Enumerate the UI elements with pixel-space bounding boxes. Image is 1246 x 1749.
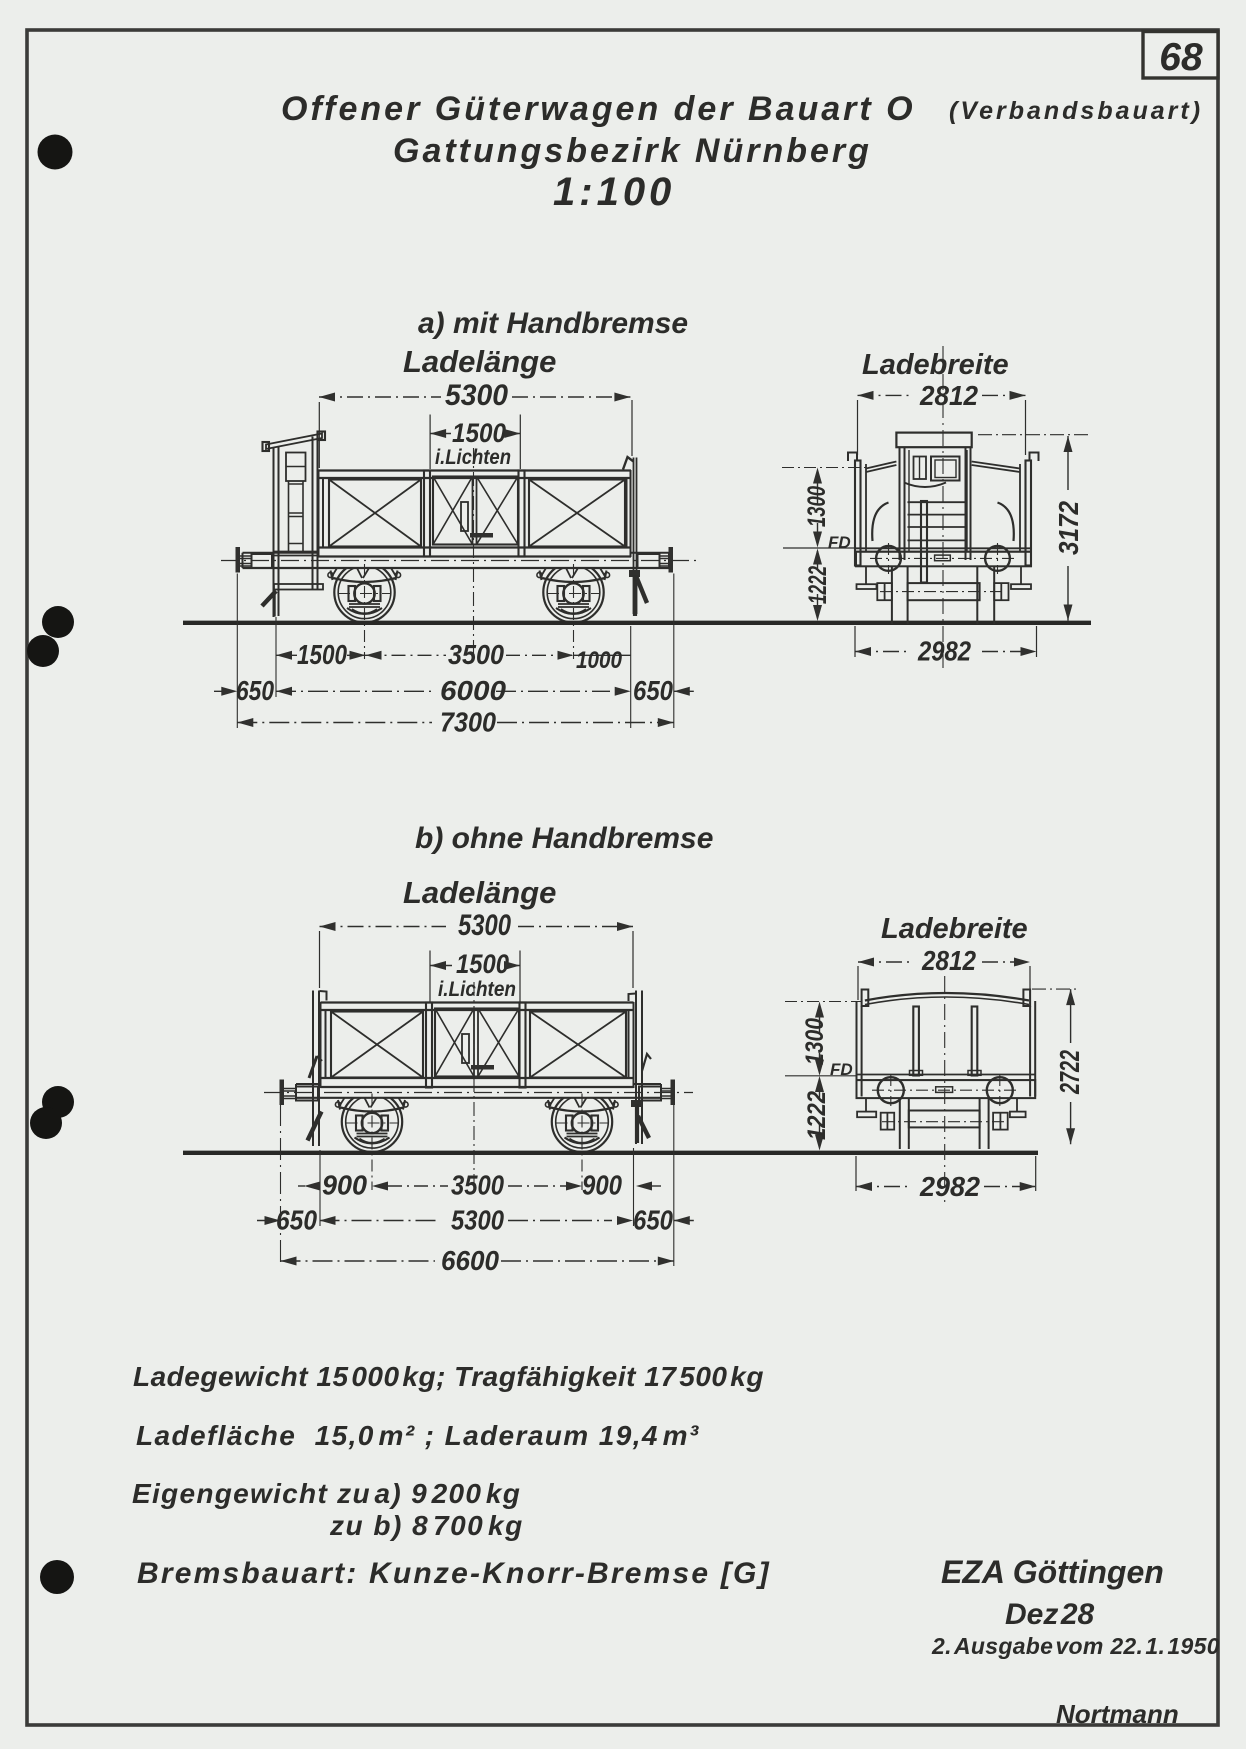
svg-text:1222: 1222 xyxy=(803,1091,831,1140)
svg-text:FD: FD xyxy=(830,1060,853,1079)
svg-text:2722: 2722 xyxy=(1054,1050,1085,1095)
svg-text:5300: 5300 xyxy=(458,909,511,942)
svg-text:1000: 1000 xyxy=(576,647,623,674)
svg-text:Eigengewicht zu a) 9 200 kg: Eigengewicht zu a) 9 200 kg xyxy=(132,1478,521,1509)
svg-text:2982: 2982 xyxy=(917,636,971,667)
svg-text:Ladelänge: Ladelänge xyxy=(403,344,556,379)
svg-text:i.Lichten: i.Lichten xyxy=(438,978,516,1001)
svg-text:EZA Göttingen: EZA Göttingen xyxy=(941,1554,1164,1590)
svg-text:Ladelänge: Ladelänge xyxy=(403,875,556,910)
svg-text:650: 650 xyxy=(633,675,673,706)
svg-text:2812: 2812 xyxy=(919,380,978,411)
svg-text:3500: 3500 xyxy=(451,1170,504,1201)
svg-text:68: 68 xyxy=(1159,36,1203,79)
svg-text:650: 650 xyxy=(236,675,274,706)
svg-text:Ladebreite: Ladebreite xyxy=(881,913,1028,945)
svg-text:5300: 5300 xyxy=(451,1205,504,1236)
svg-text:(Verbandsbauart): (Verbandsbauart) xyxy=(949,97,1203,125)
svg-text:2982: 2982 xyxy=(919,1171,980,1202)
svg-text:2812: 2812 xyxy=(921,945,976,976)
svg-text:Offener Güterwagen der Bauart: Offener Güterwagen der Bauart O xyxy=(281,90,916,128)
svg-text:1500: 1500 xyxy=(297,639,347,670)
svg-text:900: 900 xyxy=(582,1170,622,1201)
svg-text:FD: FD xyxy=(828,533,851,552)
svg-text:650: 650 xyxy=(633,1205,673,1236)
svg-text:1300: 1300 xyxy=(801,1018,829,1065)
svg-text:zu b) 8 700 kg: zu b) 8 700 kg xyxy=(329,1510,524,1541)
svg-text:Ladegewicht 15 000 kg; Tragfäh: Ladegewicht 15 000 kg; Tragfähigkeit 17 … xyxy=(133,1361,764,1392)
svg-text:Ladebreite: Ladebreite xyxy=(862,349,1009,381)
svg-text:Gattungsbezirk Nürnberg: Gattungsbezirk Nürnberg xyxy=(393,132,872,170)
svg-text:2. Ausgabe vom 22. 1. 1950: 2. Ausgabe vom 22. 1. 1950 xyxy=(931,1633,1220,1659)
svg-text:3500: 3500 xyxy=(448,639,504,670)
svg-text:1:100: 1:100 xyxy=(553,170,675,214)
svg-text:Nortmann: Nortmann xyxy=(1056,1699,1179,1729)
svg-text:3172: 3172 xyxy=(1053,501,1084,555)
svg-text:1222: 1222 xyxy=(804,566,832,604)
svg-text:6000: 6000 xyxy=(440,675,506,706)
svg-text:650: 650 xyxy=(276,1205,317,1236)
svg-text:1500: 1500 xyxy=(452,418,506,448)
svg-text:Ladefläche 15,0 m² ; Laderaum: Ladefläche 15,0 m² ; Laderaum 19,4 m³ xyxy=(136,1420,700,1451)
svg-text:1500: 1500 xyxy=(456,949,509,979)
svg-text:a) mit Handbremse: a) mit Handbremse xyxy=(418,307,688,340)
svg-text:5300: 5300 xyxy=(445,379,508,412)
svg-text:7300: 7300 xyxy=(440,707,496,738)
svg-text:b) ohne Handbremse: b) ohne Handbremse xyxy=(415,822,713,855)
svg-text:900: 900 xyxy=(322,1170,367,1201)
svg-text:6600: 6600 xyxy=(441,1245,499,1276)
svg-text:1300: 1300 xyxy=(803,486,831,527)
svg-text:Dez 28: Dez 28 xyxy=(1005,1598,1095,1631)
svg-text:Bremsbauart: Kunze-Knorr-Brems: Bremsbauart: Kunze-Knorr-Bremse [G] xyxy=(137,1557,771,1590)
